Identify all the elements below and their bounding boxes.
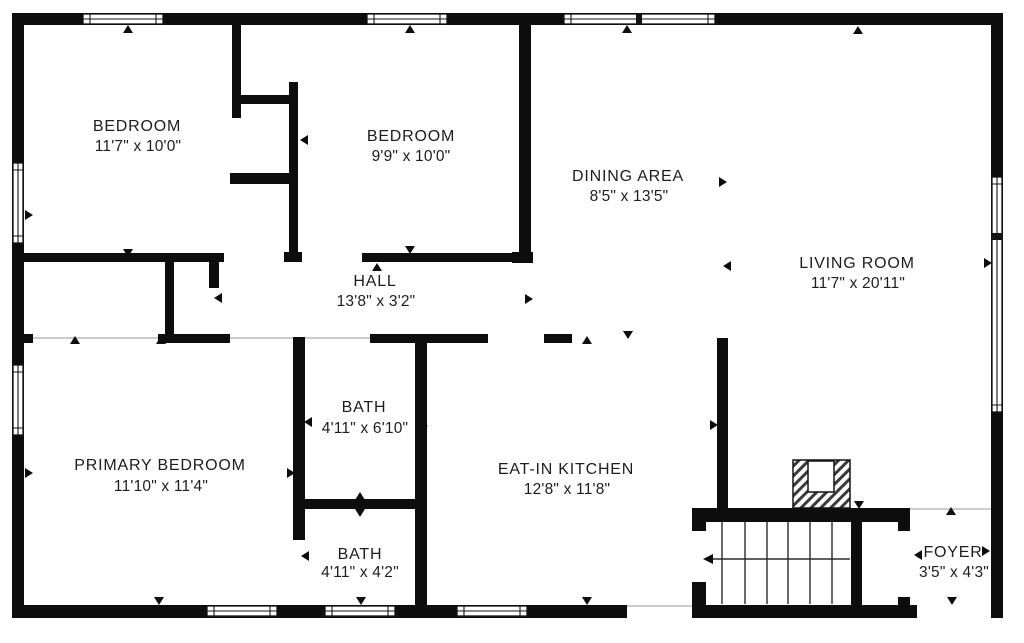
room-dims: 4'11" x 6'10" xyxy=(322,420,408,437)
room-name: EAT-IN KITCHEN xyxy=(498,461,634,478)
room-name: HALL xyxy=(353,273,396,290)
window xyxy=(367,14,447,24)
room-dims: 13'8" x 3'2" xyxy=(337,293,416,310)
room-name: FOYER xyxy=(923,544,982,561)
room-name: DINING AREA xyxy=(572,168,684,185)
window xyxy=(83,14,163,24)
plan-background xyxy=(0,0,1024,643)
room-dims: 12'8" x 11'8" xyxy=(524,481,610,498)
exterior-wall-bottom-stairs xyxy=(692,605,917,618)
exterior-wall-left xyxy=(12,13,24,618)
room-dims: 3'5" x 4'3" xyxy=(919,564,989,581)
room-name: BATH xyxy=(338,546,383,563)
window xyxy=(325,606,395,616)
window xyxy=(13,163,23,243)
room-dims: 11'7" x 10'0" xyxy=(95,138,181,155)
fireplace-chimney xyxy=(793,460,850,508)
room-dims: 4'11" x 4'2" xyxy=(321,564,399,581)
window xyxy=(992,177,1002,412)
room-dims: 8'5" x 13'5" xyxy=(590,188,669,205)
window xyxy=(207,606,277,616)
chimney-flue xyxy=(808,461,834,492)
room-name: BEDROOM xyxy=(367,128,455,145)
exterior-wall-bottom-west xyxy=(12,605,627,618)
window xyxy=(13,365,23,435)
room-dims: 11'7" x 20'11" xyxy=(811,275,905,292)
window xyxy=(564,14,715,24)
window xyxy=(457,606,527,616)
room-name: BATH xyxy=(342,399,387,416)
floor-plan: BEDROOM 11'7" x 10'0" BEDROOM 9'9" x 10'… xyxy=(0,0,1024,643)
room-name: PRIMARY BEDROOM xyxy=(74,457,245,474)
room-dims: 11'10" x 11'4" xyxy=(114,478,208,495)
room-name: BEDROOM xyxy=(93,118,181,135)
room-dims: 9'9" x 10'0" xyxy=(372,148,451,165)
room-name: LIVING ROOM xyxy=(799,255,914,272)
floor-plan-page: BEDROOM 11'7" x 10'0" BEDROOM 9'9" x 10'… xyxy=(0,0,1024,643)
